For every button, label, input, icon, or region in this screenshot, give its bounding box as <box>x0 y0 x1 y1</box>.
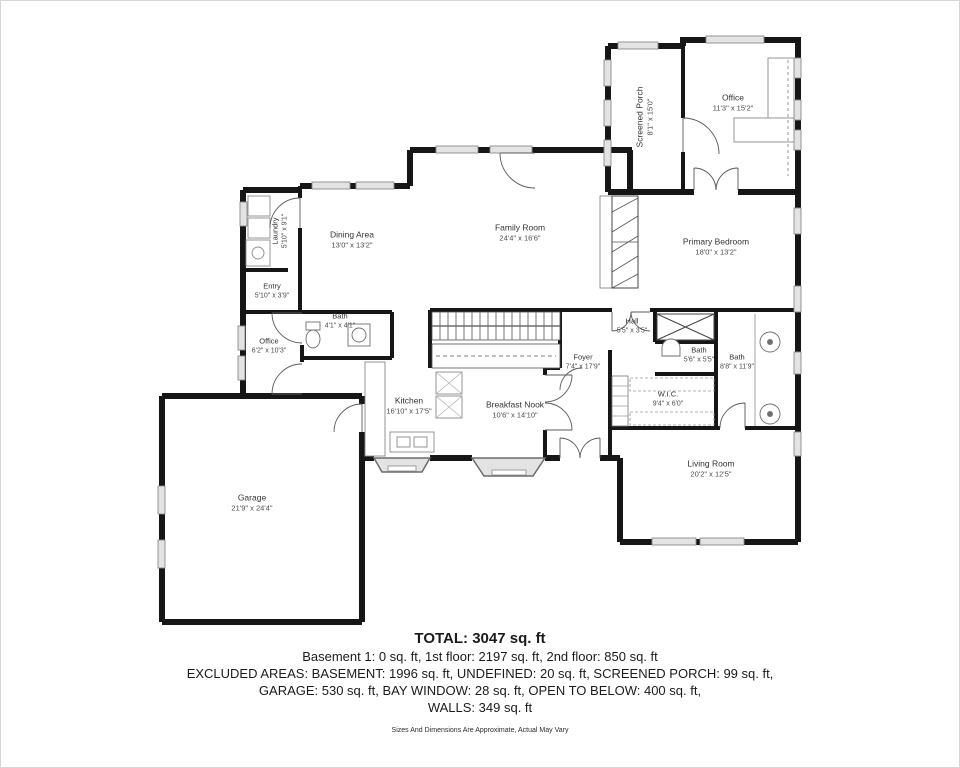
office-builtin-desk <box>734 58 794 176</box>
area-summary: TOTAL: 3047 sq. ft Basement 1: 0 sq. ft,… <box>0 630 960 734</box>
excluded-areas-3: WALLS: 349 sq. ft <box>0 700 960 717</box>
door-swings <box>270 118 745 458</box>
windows <box>158 36 801 568</box>
kitchen-counters <box>365 362 462 456</box>
closet-crossbox <box>657 314 714 340</box>
total-area: TOTAL: 3047 sq. ft <box>0 630 960 647</box>
disclaimer-text: Sizes And Dimensions Are Approximate, Ac… <box>0 727 960 734</box>
staircase <box>432 312 560 368</box>
excluded-areas-2: GARAGE: 530 sq. ft, BAY WINDOW: 28 sq. f… <box>0 683 960 700</box>
wic-shelving <box>612 376 714 426</box>
laundry-appliances <box>246 196 270 266</box>
excluded-areas-1: EXCLUDED AREAS: BASEMENT: 1996 sq. ft, U… <box>0 666 960 683</box>
floorplan-page: Screened Porch 8'1" x 15'0" Office 11'3"… <box>0 0 960 768</box>
floor-areas: Basement 1: 0 sq. ft, 1st floor: 2197 sq… <box>0 649 960 666</box>
fireplace <box>600 196 638 288</box>
